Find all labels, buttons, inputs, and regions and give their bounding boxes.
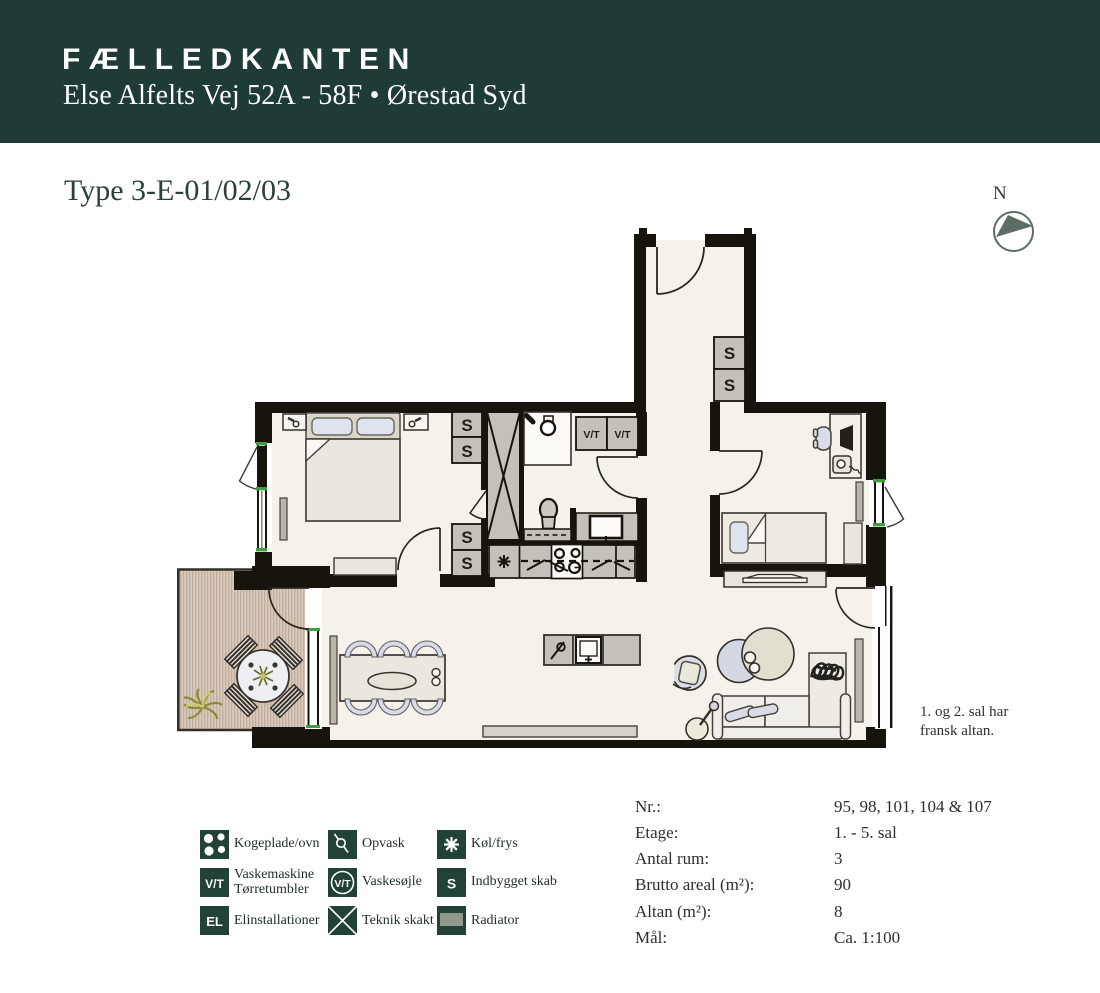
- svg-text:N: N: [993, 183, 1007, 204]
- svg-text:EL: EL: [206, 914, 223, 929]
- svg-text:S: S: [461, 554, 472, 573]
- svg-text:S: S: [461, 442, 472, 461]
- svg-text:V/T: V/T: [334, 878, 351, 890]
- svg-text:S: S: [461, 416, 472, 435]
- svg-text:V/T: V/T: [583, 429, 600, 441]
- svg-text:V/T: V/T: [205, 877, 224, 891]
- svg-text:V/T: V/T: [614, 429, 631, 441]
- svg-text:S: S: [447, 876, 456, 892]
- svg-text:S: S: [724, 344, 735, 363]
- svg-text:S: S: [724, 376, 735, 395]
- svg-text:S: S: [461, 528, 472, 547]
